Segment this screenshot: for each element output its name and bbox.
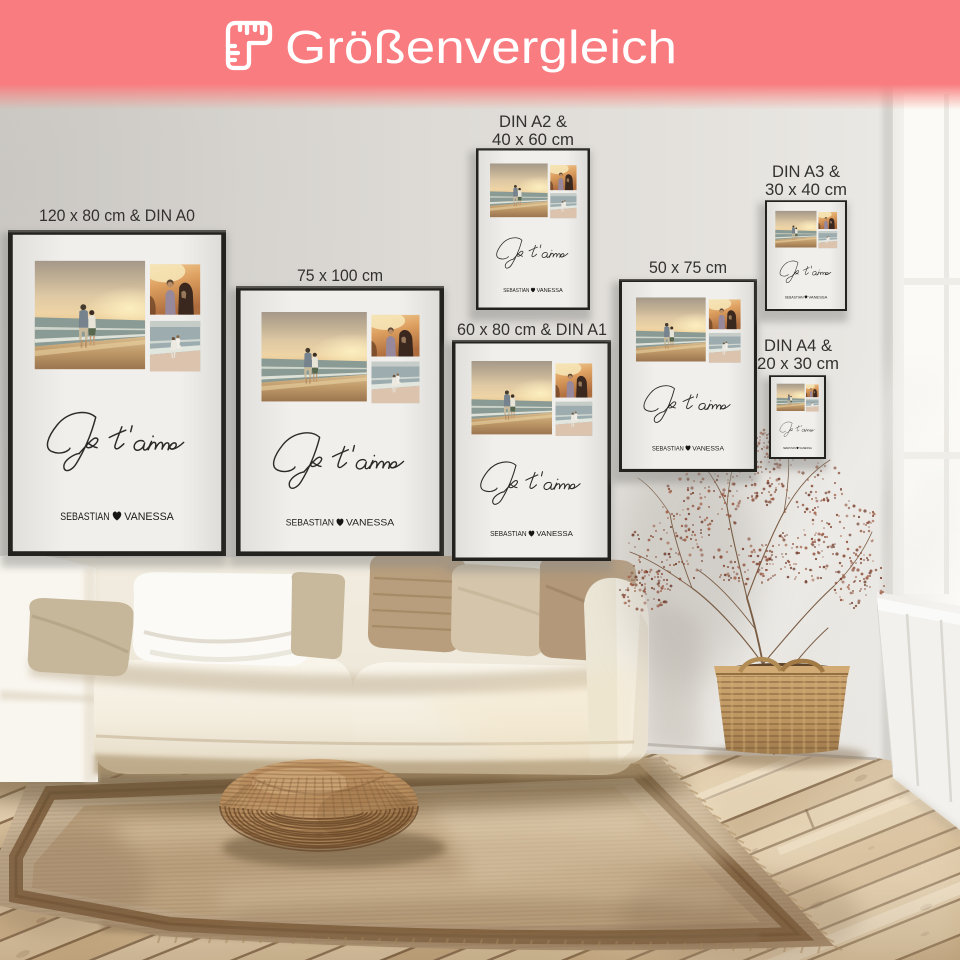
svg-text:SEBASTIAN: SEBASTIAN [60, 511, 110, 523]
svg-text:VANESSA: VANESSA [799, 446, 812, 450]
svg-text:50 x 75 cm: 50 x 75 cm [649, 258, 727, 277]
svg-text:20 x 30 cm: 20 x 30 cm [757, 354, 839, 373]
svg-text:SEBASTIAN: SEBASTIAN [652, 445, 684, 452]
svg-text:75 x 100 cm: 75 x 100 cm [297, 266, 383, 285]
svg-text:SEBASTIAN: SEBASTIAN [490, 529, 527, 538]
svg-text:VANESSA: VANESSA [537, 288, 563, 294]
svg-text:VANESSA: VANESSA [809, 295, 828, 299]
svg-text:Größenvergleich: Größenvergleich [285, 21, 677, 73]
svg-text:VANESSA: VANESSA [124, 511, 174, 523]
svg-text:VANESSA: VANESSA [346, 517, 395, 528]
svg-text:40 x 60 cm: 40 x 60 cm [492, 130, 574, 149]
svg-text:DIN A4 &: DIN A4 & [764, 336, 833, 355]
svg-text:SEBASTIAN: SEBASTIAN [785, 295, 804, 299]
svg-text:SEBASTIAN: SEBASTIAN [783, 446, 796, 450]
svg-text:DIN A3 &: DIN A3 & [772, 162, 841, 181]
svg-text:120 x 80 cm & DIN A0: 120 x 80 cm & DIN A0 [39, 206, 195, 225]
svg-text:VANESSA: VANESSA [536, 529, 573, 538]
svg-text:VANESSA: VANESSA [692, 445, 724, 452]
svg-text:SEBASTIAN: SEBASTIAN [286, 517, 334, 528]
svg-text:SEBASTIAN: SEBASTIAN [503, 288, 529, 294]
svg-text:60 x 80 cm & DIN A1: 60 x 80 cm & DIN A1 [457, 320, 607, 339]
svg-text:DIN A2 &: DIN A2 & [499, 112, 568, 131]
svg-text:30 x 40 cm: 30 x 40 cm [765, 180, 847, 199]
